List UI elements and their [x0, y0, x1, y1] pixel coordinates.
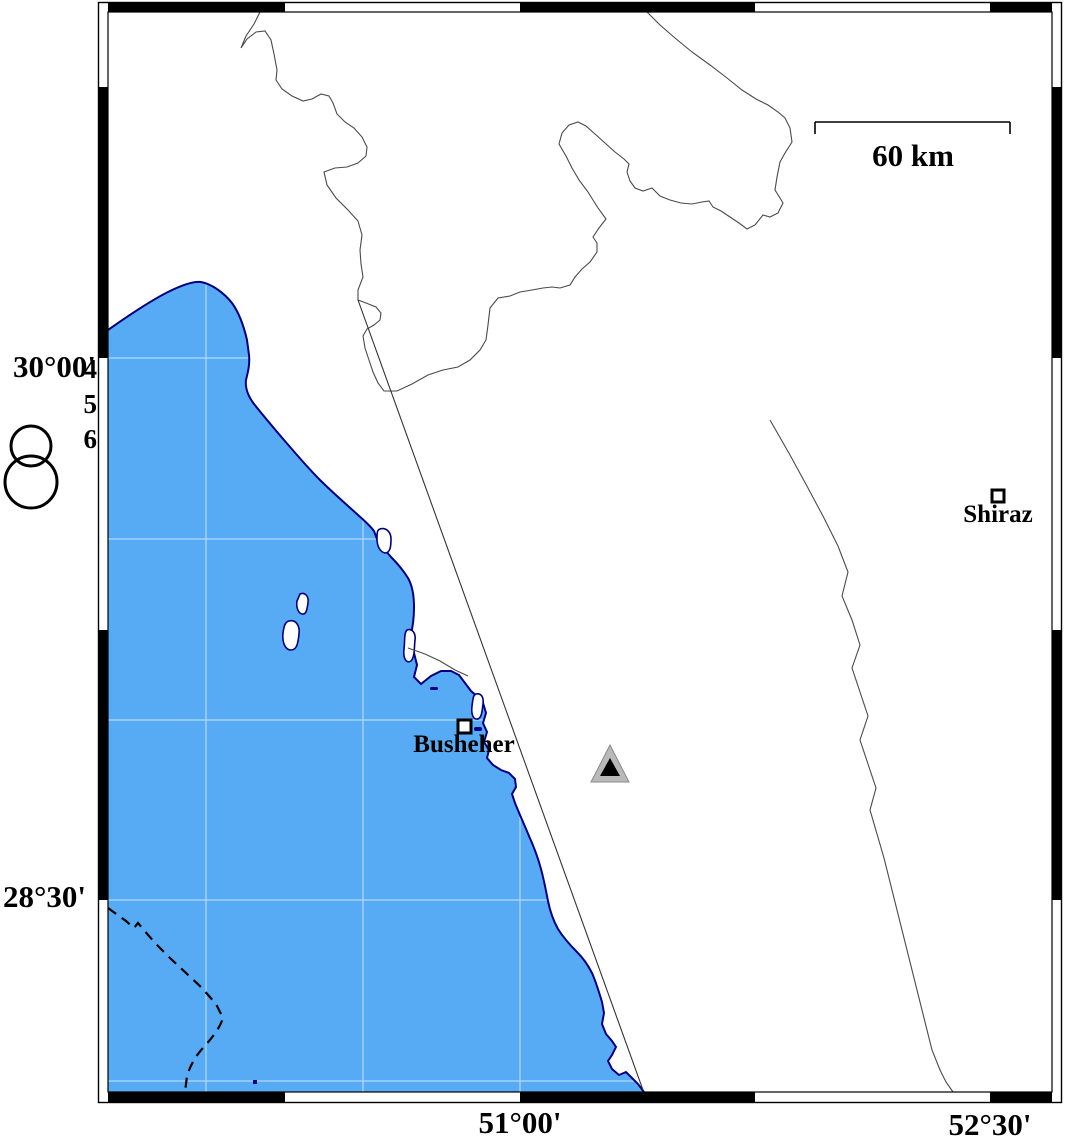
lon-label-51: 51°00' — [478, 1105, 561, 1140]
scale-bar-label: 60 km — [872, 138, 954, 173]
triangle-marker — [591, 745, 629, 782]
sea-polygon — [108, 282, 644, 1092]
map-canvas: 30°00' 28°30' 51°00' 52°30' 4 5 6 60 km … — [0, 0, 1066, 1140]
scale-bar — [815, 122, 1010, 134]
magnitude-circle-large — [5, 456, 57, 508]
magnitude-label-5: 5 — [84, 389, 98, 419]
shiraz-city-label: Shiraz — [963, 501, 1032, 528]
busheher-city-label: Busheher — [413, 731, 514, 758]
magnitude-label-6: 6 — [84, 424, 98, 454]
magnitude-label-4: 4 — [84, 354, 98, 384]
lon-label-52-30: 52°30' — [948, 1107, 1031, 1140]
lat-label-28-30: 28°30' — [3, 879, 86, 914]
map-figure: 30°00' 28°30' 51°00' 52°30' 4 5 6 60 km … — [0, 0, 1066, 1140]
